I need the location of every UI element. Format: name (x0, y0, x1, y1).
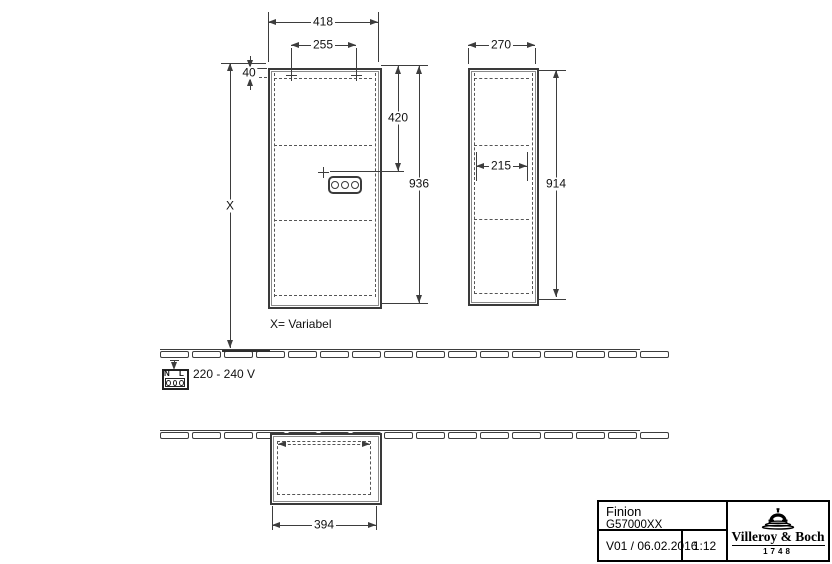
title-block-left: Finion G57000XX V01 / 06.02.2016 1:12 (599, 502, 728, 560)
wall-hatch-segment (608, 351, 637, 358)
hidden-outline (277, 441, 371, 495)
arrowhead (395, 163, 401, 171)
wall-hatch (160, 351, 640, 358)
wall-hatch-segment (192, 351, 221, 358)
arrowhead (395, 66, 401, 74)
bottom-hidden-line (274, 295, 372, 296)
shelf-line-2 (474, 219, 529, 220)
title-block-bottom-row: V01 / 06.02.2016 1:12 (599, 531, 726, 560)
extension-line (376, 506, 377, 530)
extension-line (330, 171, 404, 172)
arrowhead (370, 19, 378, 25)
wall-hatch-segment (224, 351, 253, 358)
arrowhead (227, 63, 233, 71)
drawing-scale: 1:12 (683, 531, 726, 560)
mount-point-right-marker (351, 70, 362, 81)
arrowhead (291, 42, 299, 48)
wall-hatch-segment (160, 351, 189, 358)
arrowhead (553, 70, 559, 78)
wall-hatch-segment (192, 432, 221, 439)
extension-line (537, 70, 566, 71)
extension-line (468, 48, 469, 64)
wall-hatch-segment (480, 351, 509, 358)
wall-hatch-segment (544, 432, 573, 439)
arrowhead (416, 66, 422, 74)
wall-hatch-segment (576, 432, 605, 439)
extension-line (527, 152, 528, 181)
arrowhead (553, 289, 559, 297)
product-cell: Finion G57000XX (599, 502, 726, 531)
variable-height-note: X= Variabel (270, 317, 331, 331)
terminal-dot (179, 380, 184, 386)
terminal-dot (173, 380, 178, 386)
wall-hatch-segment (256, 351, 285, 358)
hidden-edge-left (274, 73, 275, 297)
wall-hatch-segment (416, 351, 445, 358)
arrowhead (348, 42, 356, 48)
dim-hole-spacing: 255 (311, 39, 335, 52)
arrowhead (362, 441, 370, 447)
mount-point-left-marker (286, 70, 297, 81)
wall-hatch (160, 432, 640, 439)
wall-hatch-segment (320, 351, 349, 358)
voltage-note: 220 - 240 V (193, 367, 255, 381)
power-socket (328, 176, 362, 194)
brand-name: Villeroy & Boch (732, 530, 825, 546)
arrowhead (272, 522, 280, 528)
product-name: Finion (606, 505, 726, 519)
wall-hatch-segment (288, 351, 317, 358)
side-view-cabinet (468, 68, 539, 306)
fountain-icon (758, 508, 798, 530)
terminal-dot (166, 380, 171, 386)
hidden-edge-right (532, 73, 533, 294)
socket-center-marker (318, 167, 329, 178)
hidden-edge-left (474, 73, 475, 294)
front-view-cabinet (268, 68, 382, 309)
dim-front-height: 936 (407, 178, 431, 191)
terminal-strip (165, 378, 185, 387)
bottom-hidden-line (474, 293, 529, 294)
wall-hatch-segment (480, 432, 509, 439)
arrowhead (527, 42, 535, 48)
shelf-line-1 (474, 145, 529, 146)
back-edge-line (278, 444, 370, 445)
wall-hatch-segment (512, 432, 541, 439)
extension-line (291, 48, 292, 68)
wall-hatch-segment (448, 351, 477, 358)
shelf-line-1 (274, 145, 372, 146)
arrowhead (268, 19, 276, 25)
wall-hatch-segment (416, 432, 445, 439)
socket-pin (331, 181, 339, 189)
socket-pin (341, 181, 349, 189)
arrowhead (227, 340, 233, 348)
wall-hatch-segment (608, 432, 637, 439)
dim-side-inner: 215 (489, 160, 513, 173)
wall-hatch-segment (640, 432, 669, 439)
extension-line (535, 48, 536, 64)
arrowhead (278, 441, 286, 447)
dim-x-variable: X (224, 200, 236, 213)
arrowhead (368, 522, 376, 528)
dim-front-width: 418 (311, 16, 335, 29)
arrowhead (416, 295, 422, 303)
wall-line-lower (160, 430, 640, 439)
brand-logo: Villeroy & Boch 1748 (728, 502, 828, 560)
wall-hatch-segment (352, 351, 381, 358)
wall-hatch-segment (160, 432, 189, 439)
socket-pin (351, 181, 359, 189)
arrowhead (476, 163, 484, 169)
neutral-label: N (164, 369, 170, 378)
wall-hatch-segment (224, 432, 253, 439)
extension-line (356, 48, 357, 68)
wall-hatch-segment (576, 351, 605, 358)
wall-hatch-segment (544, 351, 573, 358)
title-block: Finion G57000XX V01 / 06.02.2016 1:12 (597, 500, 830, 562)
dim-upper-section: 420 (386, 112, 410, 125)
dim-side-height: 914 (544, 178, 568, 191)
extension-line (378, 12, 379, 62)
version-date: V01 / 06.02.2016 (599, 531, 683, 560)
wall-hatch-segment (448, 432, 477, 439)
hanger-rail-line (474, 78, 529, 79)
wall-hatch-segment (640, 351, 669, 358)
arrowhead (468, 42, 476, 48)
brand-year: 1748 (763, 547, 793, 556)
article-number: G57000XX (606, 519, 726, 531)
extension-line (381, 303, 428, 304)
plan-view-cabinet (270, 433, 382, 505)
dim-side-depth: 270 (489, 39, 513, 52)
dim-hanger-offset: 40 (240, 67, 257, 80)
wall-hatch-segment (384, 432, 413, 439)
wall-reference-thick-segment (222, 350, 270, 352)
arrowhead (519, 163, 527, 169)
wall-hatch-segment (384, 351, 413, 358)
technical-drawing: 418 255 40 X 420 936 270 215 914 X= (0, 0, 832, 564)
dim-plan-width: 394 (312, 519, 336, 532)
line-label: L (179, 369, 184, 378)
extension-line (537, 299, 566, 300)
wall-hatch-segment (512, 351, 541, 358)
hidden-edge-right (375, 73, 376, 297)
shelf-line-2 (274, 220, 372, 221)
